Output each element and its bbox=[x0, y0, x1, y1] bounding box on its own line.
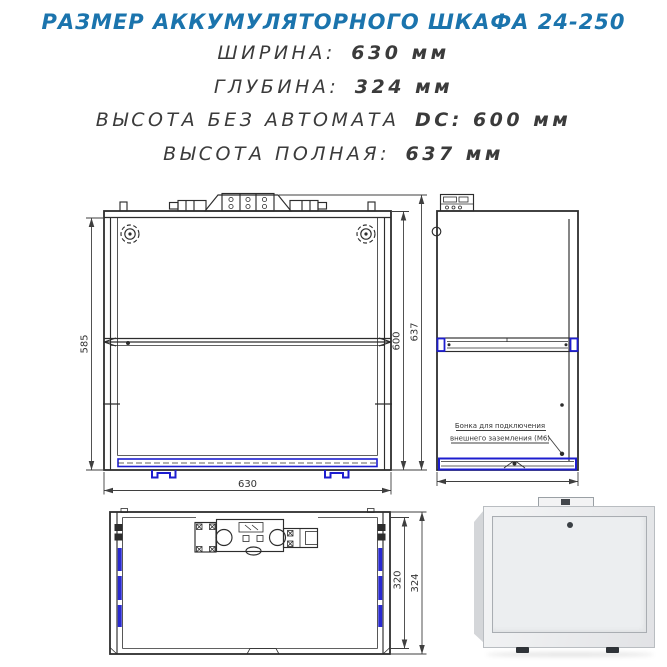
product-photo bbox=[468, 497, 664, 661]
spec-height-full-label: ВЫСОТА ПОЛНАЯ: bbox=[163, 143, 390, 165]
foot-bracket-right bbox=[325, 470, 349, 478]
bottom-rail-side bbox=[439, 459, 576, 470]
dim-label-324: 324 bbox=[410, 573, 421, 592]
dc-breaker-side bbox=[441, 195, 474, 212]
dimension-585: 585 bbox=[80, 218, 104, 470]
page-title: РАЗМЕР АККУМУЛЯТОРНОГО ШКАФА 24-250 bbox=[0, 10, 667, 34]
photo-door-lock bbox=[567, 522, 573, 528]
grounding-annotation: Бонка для подключения внешнего заземлени… bbox=[450, 422, 564, 456]
middle-rail-front bbox=[104, 338, 391, 346]
spec-depth-label: ГЛУБИНА: bbox=[214, 76, 339, 98]
dimension-320: 320 bbox=[390, 518, 409, 649]
spec-height-no-breaker: ВЫСОТА БЕЗ АВТОМАТА DC: 600 мм bbox=[0, 104, 667, 138]
dimension-637: 637 bbox=[279, 195, 427, 470]
spec-height-full-value: 637 мм bbox=[406, 143, 504, 165]
photo-foot-left bbox=[516, 647, 529, 653]
page: РАЗМЕР АККУМУЛЯТОРНОГО ШКАФА 24-250 ШИРИ… bbox=[0, 0, 667, 667]
photo-foot-right bbox=[606, 647, 619, 653]
middle-rail-side bbox=[437, 338, 578, 352]
dc-breaker-top bbox=[195, 520, 318, 556]
annotation-line-1: Бонка для подключения bbox=[455, 422, 545, 430]
spec-height-full: ВЫСОТА ПОЛНАЯ: 637 мм bbox=[0, 138, 667, 172]
cabinet-front-outline bbox=[104, 211, 391, 470]
spec-depth-value: 324 мм bbox=[355, 76, 453, 98]
foot-bracket-left bbox=[152, 470, 176, 478]
photo-shadow bbox=[486, 652, 654, 657]
door-lock-left bbox=[121, 225, 139, 243]
spec-depth: ГЛУБИНА: 324 мм bbox=[0, 71, 667, 105]
spec-height-no-breaker-label: ВЫСОТА БЕЗ АВТОМАТА bbox=[96, 109, 400, 131]
top-bolt-left bbox=[120, 202, 127, 211]
top-bolt-right bbox=[368, 202, 375, 211]
side-view-drawing: Бонка для подключения внешнего заземлени… bbox=[432, 195, 578, 487]
dc-breaker-front bbox=[170, 194, 327, 212]
side-rails-top bbox=[120, 548, 381, 627]
front-view-drawing: 585 600 637 630 bbox=[80, 194, 428, 495]
dim-label-630: 630 bbox=[238, 479, 257, 490]
cabinet-side-outline bbox=[437, 211, 578, 470]
photo-cabinet-body bbox=[483, 506, 655, 648]
photo-breaker-switch bbox=[561, 499, 570, 505]
dimension-side-bottom bbox=[437, 472, 578, 486]
dim-label-320: 320 bbox=[393, 570, 404, 589]
annotation-line-2: внешнего заземления (М6) bbox=[450, 435, 550, 443]
dim-label-600: 600 bbox=[392, 331, 403, 350]
dim-label-585: 585 bbox=[80, 334, 91, 353]
cabinet-top-outline bbox=[110, 512, 390, 654]
spec-width-value: 630 мм bbox=[351, 42, 449, 64]
header: РАЗМЕР АККУМУЛЯТОРНОГО ШКАФА 24-250 ШИРИ… bbox=[0, 0, 667, 171]
grounding-boss-dot bbox=[560, 403, 564, 407]
door-lock-right bbox=[357, 225, 375, 243]
photo-cabinet-door bbox=[492, 516, 647, 633]
dim-label-637: 637 bbox=[410, 322, 421, 341]
top-view-drawing: 320 324 bbox=[110, 509, 427, 655]
spec-height-no-breaker-value: DC: 600 мм bbox=[415, 109, 571, 131]
spec-width-label: ШИРИНА: bbox=[217, 42, 335, 64]
spec-width: ШИРИНА: 630 мм bbox=[0, 37, 667, 71]
dimension-600: 600 bbox=[392, 212, 410, 471]
